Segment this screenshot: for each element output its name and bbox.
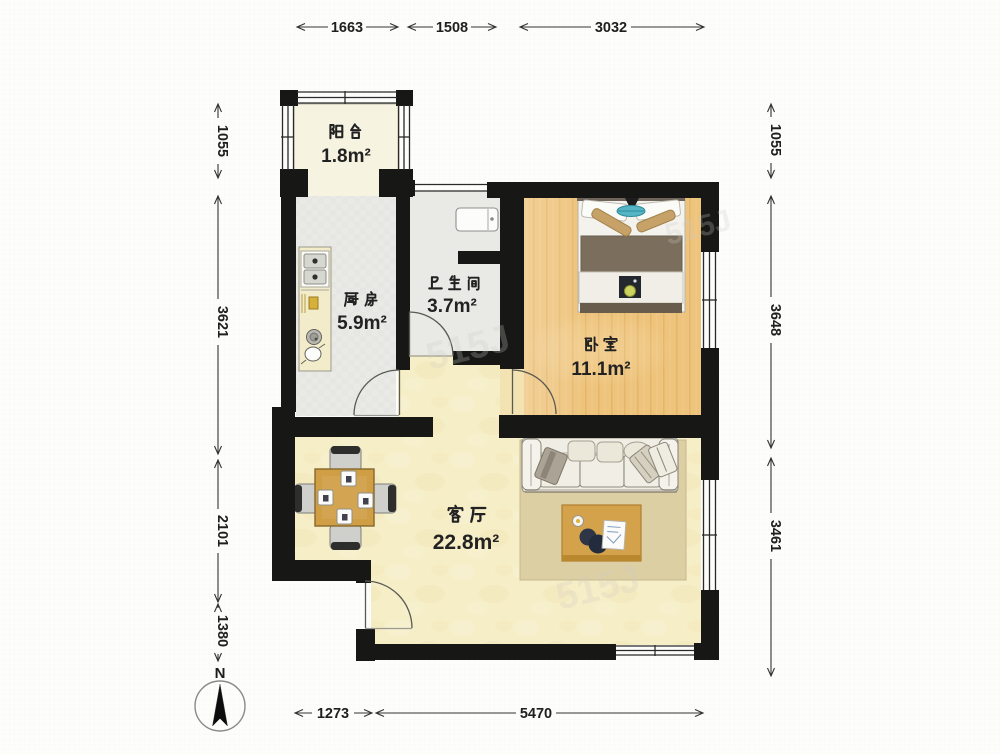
svg-text:N: N (215, 665, 226, 682)
svg-text:3032: 3032 (595, 20, 627, 36)
svg-text:2101: 2101 (214, 515, 230, 547)
svg-text:1508: 1508 (436, 20, 468, 36)
svg-text:5.9m²: 5.9m² (337, 313, 387, 334)
svg-text:1380: 1380 (214, 615, 230, 647)
svg-text:3461: 3461 (767, 520, 783, 552)
svg-text:3.7m²: 3.7m² (427, 296, 477, 317)
svg-text:1.8m²: 1.8m² (321, 146, 371, 167)
svg-text:1055: 1055 (214, 125, 230, 157)
svg-text:3648: 3648 (767, 304, 783, 336)
svg-text:3621: 3621 (214, 306, 230, 338)
svg-text:1663: 1663 (331, 20, 363, 36)
svg-text:1055: 1055 (767, 124, 783, 156)
svg-text:22.8m²: 22.8m² (433, 531, 500, 554)
svg-text:1273: 1273 (317, 706, 349, 722)
svg-text:5470: 5470 (520, 706, 552, 722)
svg-text:11.1m²: 11.1m² (571, 359, 630, 380)
